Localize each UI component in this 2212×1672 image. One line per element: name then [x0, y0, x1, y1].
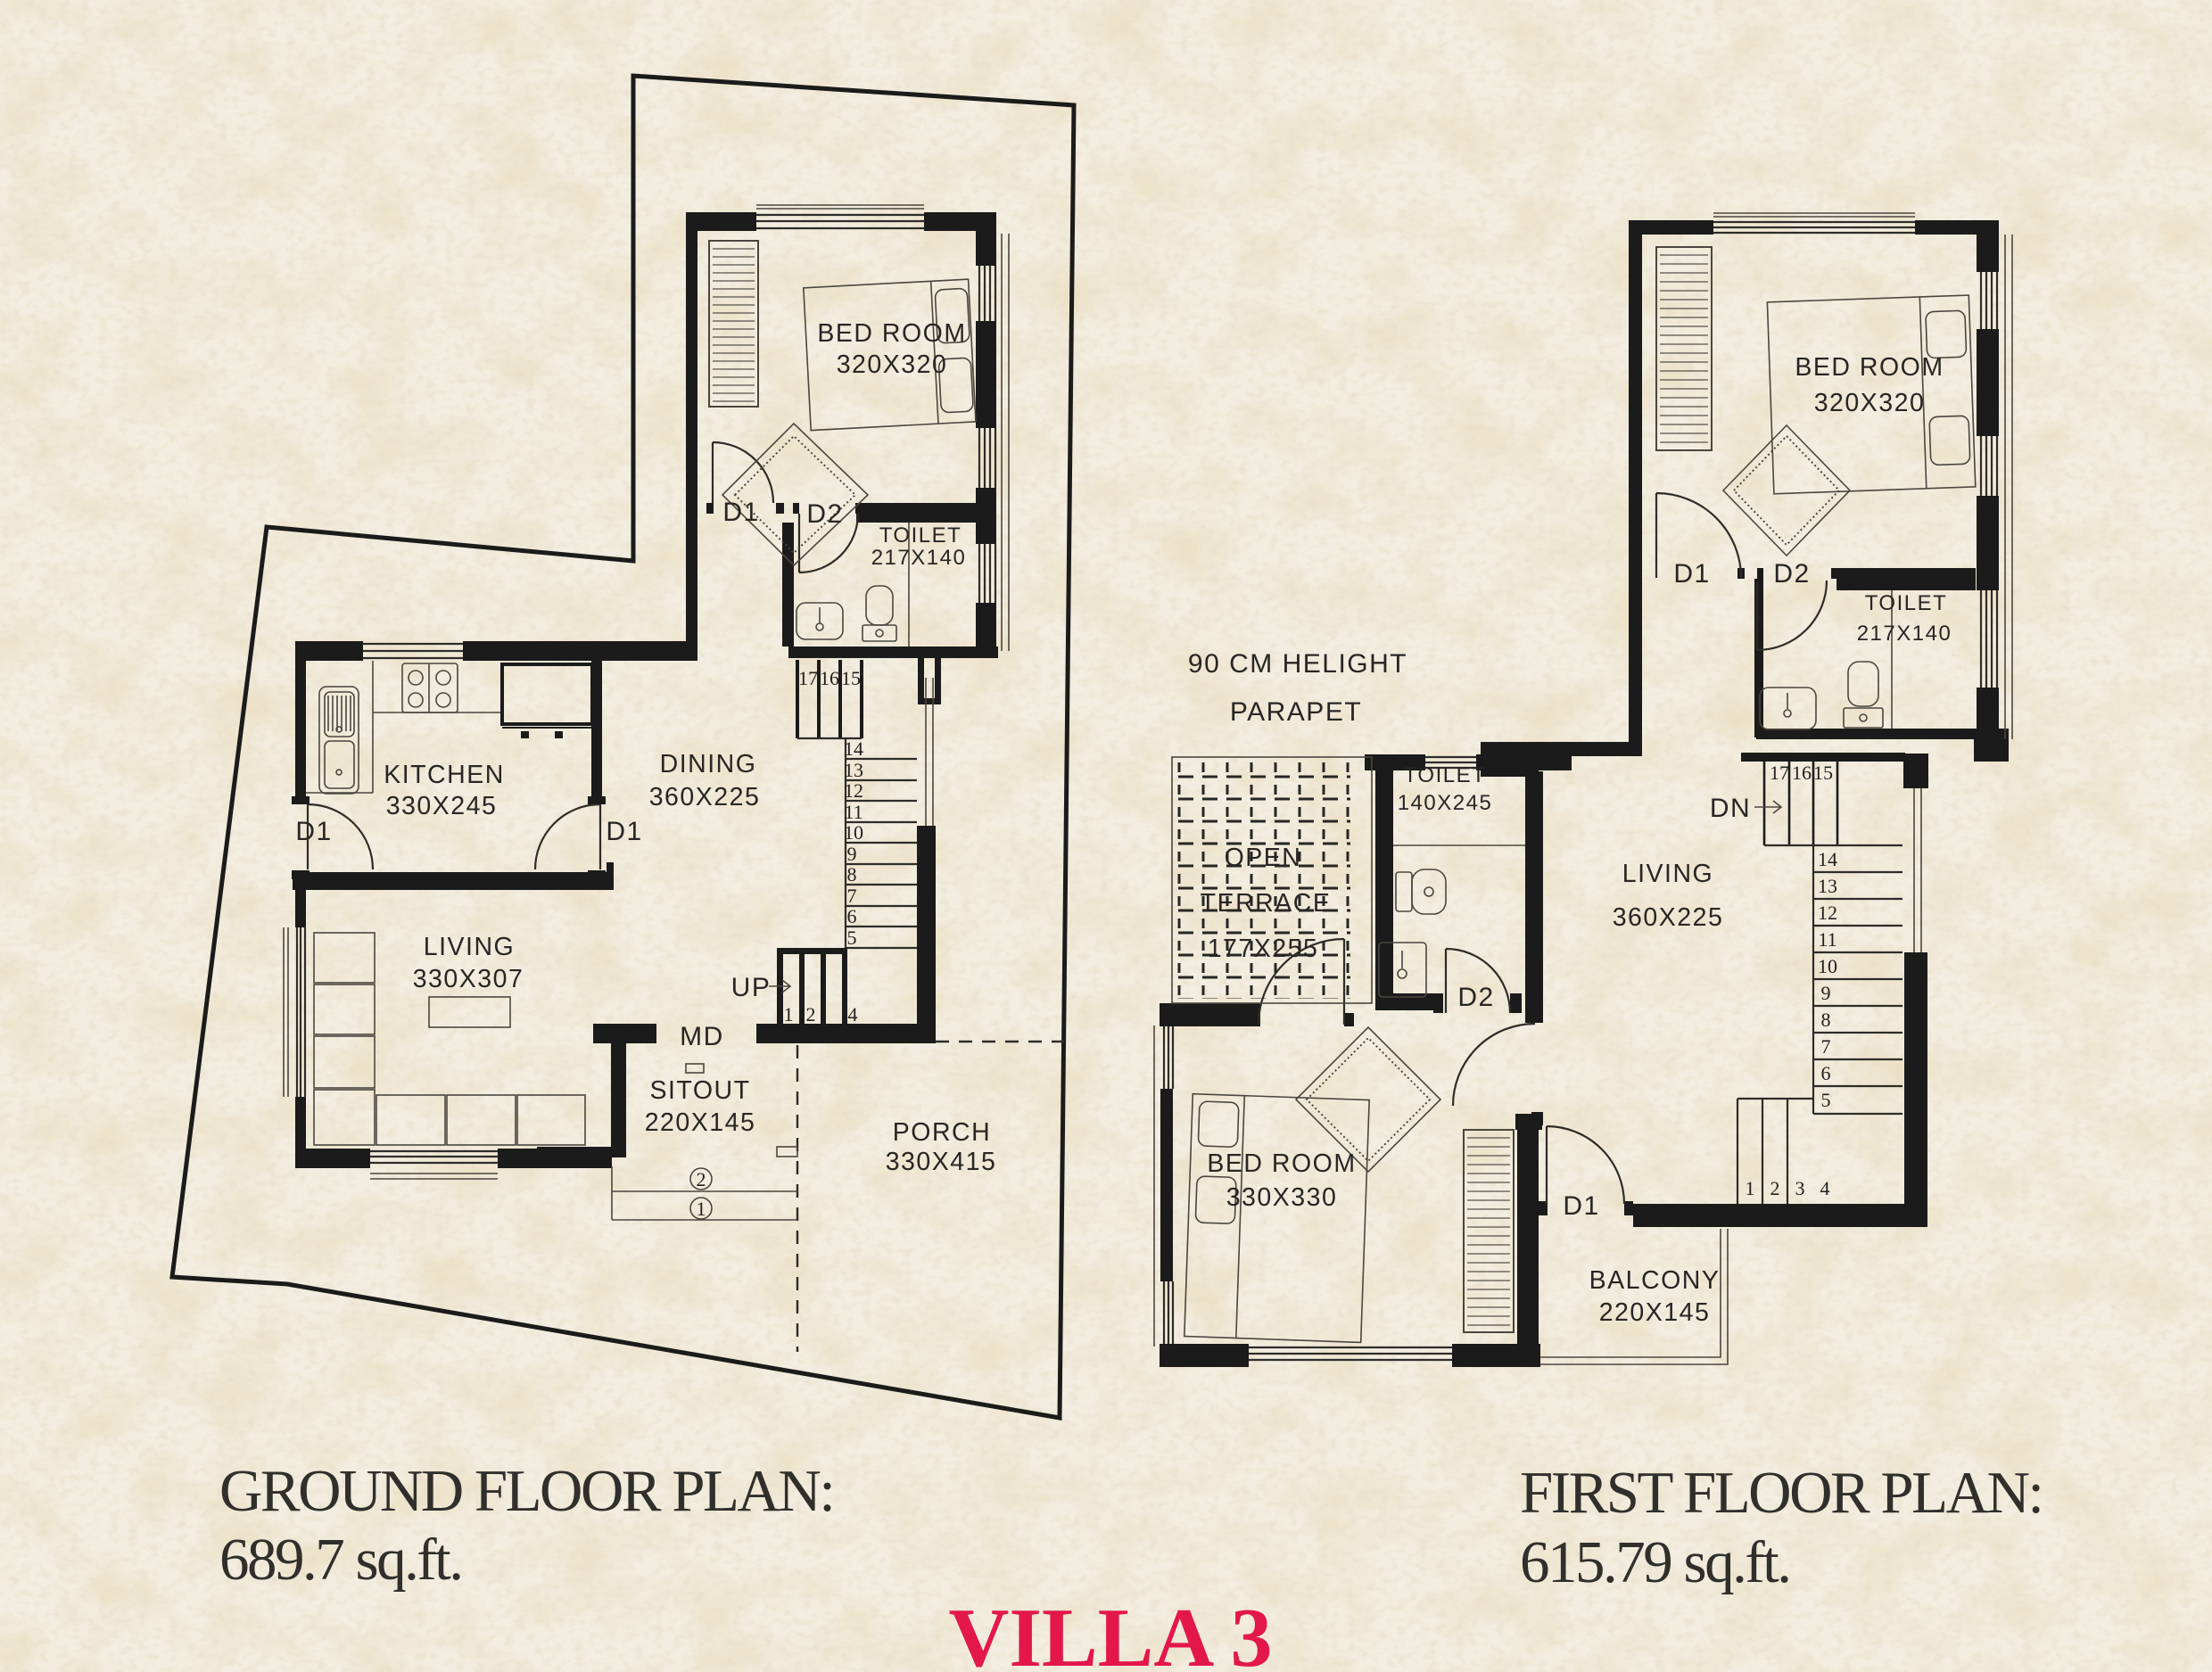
svg-text:TOILET: TOILET [1865, 591, 1948, 615]
svg-text:16: 16 [820, 667, 839, 689]
svg-text:BED ROOM: BED ROOM [817, 319, 966, 348]
svg-text:11: 11 [844, 801, 863, 823]
svg-text:12: 12 [1818, 902, 1837, 924]
svg-text:DN: DN [1710, 794, 1751, 823]
svg-text:8: 8 [1821, 1009, 1831, 1031]
svg-text:TERRACE: TERRACE [1201, 889, 1332, 918]
svg-text:5: 5 [847, 927, 857, 949]
svg-text:330X307: 330X307 [413, 965, 524, 993]
svg-text:3: 3 [1795, 1177, 1805, 1199]
svg-text:1: 1 [697, 1198, 706, 1220]
svg-text:8: 8 [847, 863, 857, 885]
svg-text:6: 6 [1821, 1062, 1831, 1084]
svg-text:14: 14 [1818, 848, 1837, 870]
svg-text:217X140: 217X140 [871, 546, 967, 570]
svg-text:D1: D1 [295, 817, 332, 846]
svg-text:D1: D1 [1673, 559, 1710, 589]
svg-text:12: 12 [844, 779, 863, 802]
svg-text:PORCH: PORCH [893, 1118, 991, 1147]
svg-text:220X145: 220X145 [1599, 1298, 1711, 1327]
svg-text:VILLA 3: VILLA 3 [948, 1592, 1272, 1672]
svg-text:BED ROOM: BED ROOM [1795, 353, 1944, 382]
svg-text:D2: D2 [806, 499, 843, 529]
svg-text:360X225: 360X225 [649, 783, 761, 811]
svg-text:D2: D2 [1457, 983, 1494, 1012]
svg-text:4: 4 [848, 1003, 858, 1025]
svg-text:9: 9 [1821, 982, 1831, 1004]
svg-text:217X140: 217X140 [1857, 622, 1952, 646]
svg-text:90 CM HELIGHT: 90 CM HELIGHT [1188, 649, 1407, 679]
svg-text:FIRST FLOOR PLAN:: FIRST FLOOR PLAN: [1520, 1460, 2042, 1526]
svg-text:BALCONY: BALCONY [1589, 1266, 1721, 1295]
svg-text:15: 15 [1813, 762, 1833, 784]
svg-text:1: 1 [784, 1003, 794, 1025]
svg-text:D2: D2 [1773, 559, 1810, 589]
svg-text:11: 11 [1818, 928, 1836, 951]
svg-text:KITCHEN: KITCHEN [384, 761, 505, 789]
svg-text:5: 5 [1821, 1089, 1831, 1111]
svg-text:177X255: 177X255 [1208, 935, 1319, 963]
svg-text:D1: D1 [722, 498, 759, 527]
svg-text:140X245: 140X245 [1398, 791, 1493, 815]
svg-text:615.79 sq.ft.: 615.79 sq.ft. [1520, 1529, 1790, 1595]
svg-text:17: 17 [798, 667, 818, 689]
svg-text:7: 7 [847, 885, 857, 907]
svg-text:6: 6 [847, 905, 857, 927]
svg-text:15: 15 [841, 667, 861, 689]
svg-text:10: 10 [844, 821, 863, 844]
svg-text:330X415: 330X415 [886, 1148, 997, 1176]
svg-text:SITOUT: SITOUT [650, 1076, 751, 1105]
svg-text:320X320: 320X320 [837, 350, 948, 379]
svg-text:1: 1 [1746, 1177, 1755, 1199]
svg-text:OPEN: OPEN [1225, 844, 1302, 872]
svg-text:14: 14 [844, 737, 863, 760]
svg-text:2: 2 [806, 1003, 816, 1025]
svg-text:320X320: 320X320 [1814, 389, 1926, 417]
svg-text:330X245: 330X245 [386, 792, 498, 820]
svg-text:16: 16 [1792, 762, 1812, 784]
svg-text:360X225: 360X225 [1613, 903, 1724, 932]
svg-text:BED ROOM: BED ROOM [1207, 1149, 1356, 1178]
svg-text:TOILET: TOILET [1404, 763, 1487, 787]
svg-text:13: 13 [844, 759, 863, 781]
svg-text:2: 2 [1770, 1177, 1780, 1199]
svg-text:UP: UP [731, 973, 772, 1002]
svg-text:17: 17 [1770, 762, 1789, 784]
svg-text:7: 7 [1821, 1035, 1831, 1058]
svg-text:220X145: 220X145 [645, 1108, 756, 1137]
svg-text:D1: D1 [1563, 1191, 1599, 1221]
svg-text:LIVING: LIVING [424, 933, 515, 961]
svg-text:D1: D1 [606, 817, 642, 846]
svg-text:MD: MD [680, 1022, 724, 1051]
svg-text:PARAPET: PARAPET [1230, 697, 1362, 727]
svg-text:GROUND FLOOR PLAN:: GROUND FLOOR PLAN: [219, 1458, 833, 1524]
svg-text:TOILET: TOILET [879, 523, 962, 548]
svg-text:9: 9 [847, 843, 857, 865]
svg-text:4: 4 [1820, 1177, 1830, 1199]
svg-text:LIVING: LIVING [1622, 860, 1713, 888]
svg-text:13: 13 [1818, 875, 1837, 897]
svg-text:DINING: DINING [660, 750, 757, 778]
svg-text:689.7 sq.ft.: 689.7 sq.ft. [219, 1527, 462, 1593]
svg-text:330X330: 330X330 [1226, 1183, 1338, 1212]
svg-text:10: 10 [1818, 955, 1837, 977]
svg-text:2: 2 [697, 1168, 706, 1190]
